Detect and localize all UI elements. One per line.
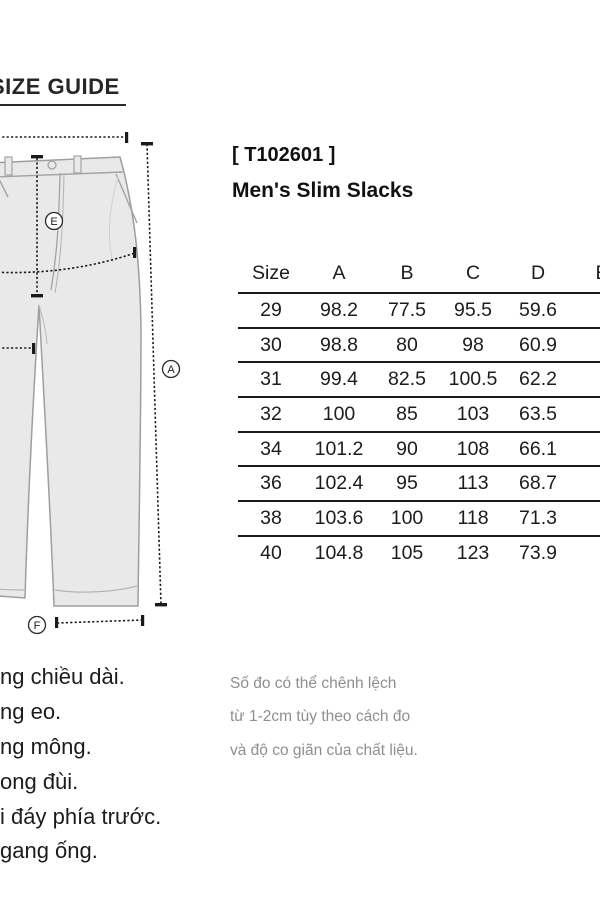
table-cell: 100 xyxy=(304,403,374,426)
belt-loop xyxy=(74,156,81,173)
table-cell: 90 xyxy=(374,438,440,461)
table-cell: 100.5 xyxy=(440,368,506,391)
measurement-caption: gang ống. xyxy=(0,834,230,869)
measure-tick xyxy=(55,617,58,628)
table-cell: 123 xyxy=(440,542,506,565)
table-cell: 118 xyxy=(440,507,506,530)
measurement-notes: ng chiều dài.ng eo.ng mông.ong đùi.i đáy… xyxy=(0,660,230,869)
table-cell: 38 xyxy=(238,507,304,530)
table-cell: 59.6 xyxy=(506,299,570,322)
table-row: 3199.482.5100.562.2 xyxy=(238,363,600,398)
table-cell: 105 xyxy=(374,542,440,565)
measure-tick xyxy=(141,615,144,626)
label-length: A xyxy=(167,364,175,376)
measure-tick xyxy=(31,155,43,158)
table-cell: B xyxy=(374,262,440,285)
table-row: 38103.610011871.3 xyxy=(238,502,600,537)
measurement-caption: ng chiều dài. xyxy=(0,660,230,695)
table-cell: 34 xyxy=(238,438,304,461)
table-cell: 95 xyxy=(374,472,440,495)
table-cell: 66.1 xyxy=(506,438,570,461)
table-cell: 80 xyxy=(374,334,440,357)
table-cell: 98.2 xyxy=(304,299,374,322)
table-cell: 29 xyxy=(238,299,304,322)
table-row: 36102.49511368.7 xyxy=(238,467,600,502)
table-cell: 100 xyxy=(374,507,440,530)
product-code: [ T102601 ] xyxy=(232,144,335,167)
disclaimer-note: Số đo có thể chênh lệchtừ 1-2cm tùy theo… xyxy=(230,667,560,768)
table-cell: 103.6 xyxy=(304,507,374,530)
table-cell: 63.5 xyxy=(506,403,570,426)
table-cell: 98 xyxy=(440,334,506,357)
table-cell: 71.3 xyxy=(506,507,570,530)
measure-tick xyxy=(32,343,35,354)
size-table: SizeABCDE 2998.277.595.559.63098.8809860… xyxy=(238,255,600,570)
table-cell: 40 xyxy=(238,542,304,565)
disclaimer-line: và độ co giãn của chất liệu. xyxy=(230,734,560,768)
size-table-header: SizeABCDE xyxy=(238,255,600,294)
table-cell: 60.9 xyxy=(506,334,570,357)
measure-tick xyxy=(133,247,136,258)
table-cell: 104.8 xyxy=(304,542,374,565)
table-cell: D xyxy=(506,262,570,285)
table-cell: 95.5 xyxy=(440,299,506,322)
product-name: Men's Slim Slacks xyxy=(232,179,413,203)
size-table-body: 2998.277.595.559.63098.8809860.93199.482… xyxy=(238,294,600,570)
table-row: 3098.8809860.9 xyxy=(238,329,600,364)
table-row: 40104.810512373.9 xyxy=(238,537,600,570)
waist-button xyxy=(48,161,56,169)
table-cell: 32 xyxy=(238,403,304,426)
table-cell: 101.2 xyxy=(304,438,374,461)
measure-line-hem xyxy=(57,620,143,623)
measurement-caption: i đáy phía trước. xyxy=(0,799,230,834)
label-hem: F xyxy=(34,620,41,632)
table-cell: 31 xyxy=(238,368,304,391)
disclaimer-line: từ 1-2cm tùy theo cách đo xyxy=(230,701,560,735)
disclaimer-line: Số đo có thể chênh lệch xyxy=(230,667,560,701)
table-cell: 77.5 xyxy=(374,299,440,322)
measure-tick xyxy=(141,142,153,145)
measure-tick xyxy=(155,603,167,606)
measure-line-length xyxy=(147,144,161,605)
measure-tick xyxy=(31,294,43,297)
label-front-rise: E xyxy=(50,216,57,228)
table-cell: 73.9 xyxy=(506,542,570,565)
table-cell: 99.4 xyxy=(304,368,374,391)
table-row: 321008510363.5 xyxy=(238,398,600,433)
table-cell: 102.4 xyxy=(304,472,374,495)
table-cell: 103 xyxy=(440,403,506,426)
table-cell: Size xyxy=(238,262,304,285)
measurement-caption: ong đùi. xyxy=(0,764,230,799)
table-row: 2998.277.595.559.6 xyxy=(238,294,600,329)
measurement-caption: ng eo. xyxy=(0,695,230,730)
table-cell: 98.8 xyxy=(304,334,374,357)
table-cell: 85 xyxy=(374,403,440,426)
table-cell: 108 xyxy=(440,438,506,461)
table-cell: 36 xyxy=(238,472,304,495)
pants-outline xyxy=(0,157,141,606)
measurement-caption: ng mông. xyxy=(0,730,230,765)
belt-loop xyxy=(5,157,12,175)
table-cell: C xyxy=(440,262,506,285)
table-cell: 82.5 xyxy=(374,368,440,391)
table-cell: 113 xyxy=(440,472,506,495)
table-cell: E xyxy=(570,262,600,285)
page-title: SIZE GUIDE xyxy=(0,74,126,106)
table-cell: 30 xyxy=(238,334,304,357)
table-cell: 62.2 xyxy=(506,368,570,391)
table-cell: A xyxy=(304,262,374,285)
table-cell: 68.7 xyxy=(506,472,570,495)
table-row: 34101.29010866.1 xyxy=(238,433,600,468)
measure-tick xyxy=(125,132,128,143)
pants-diagram: E A F xyxy=(0,128,195,655)
